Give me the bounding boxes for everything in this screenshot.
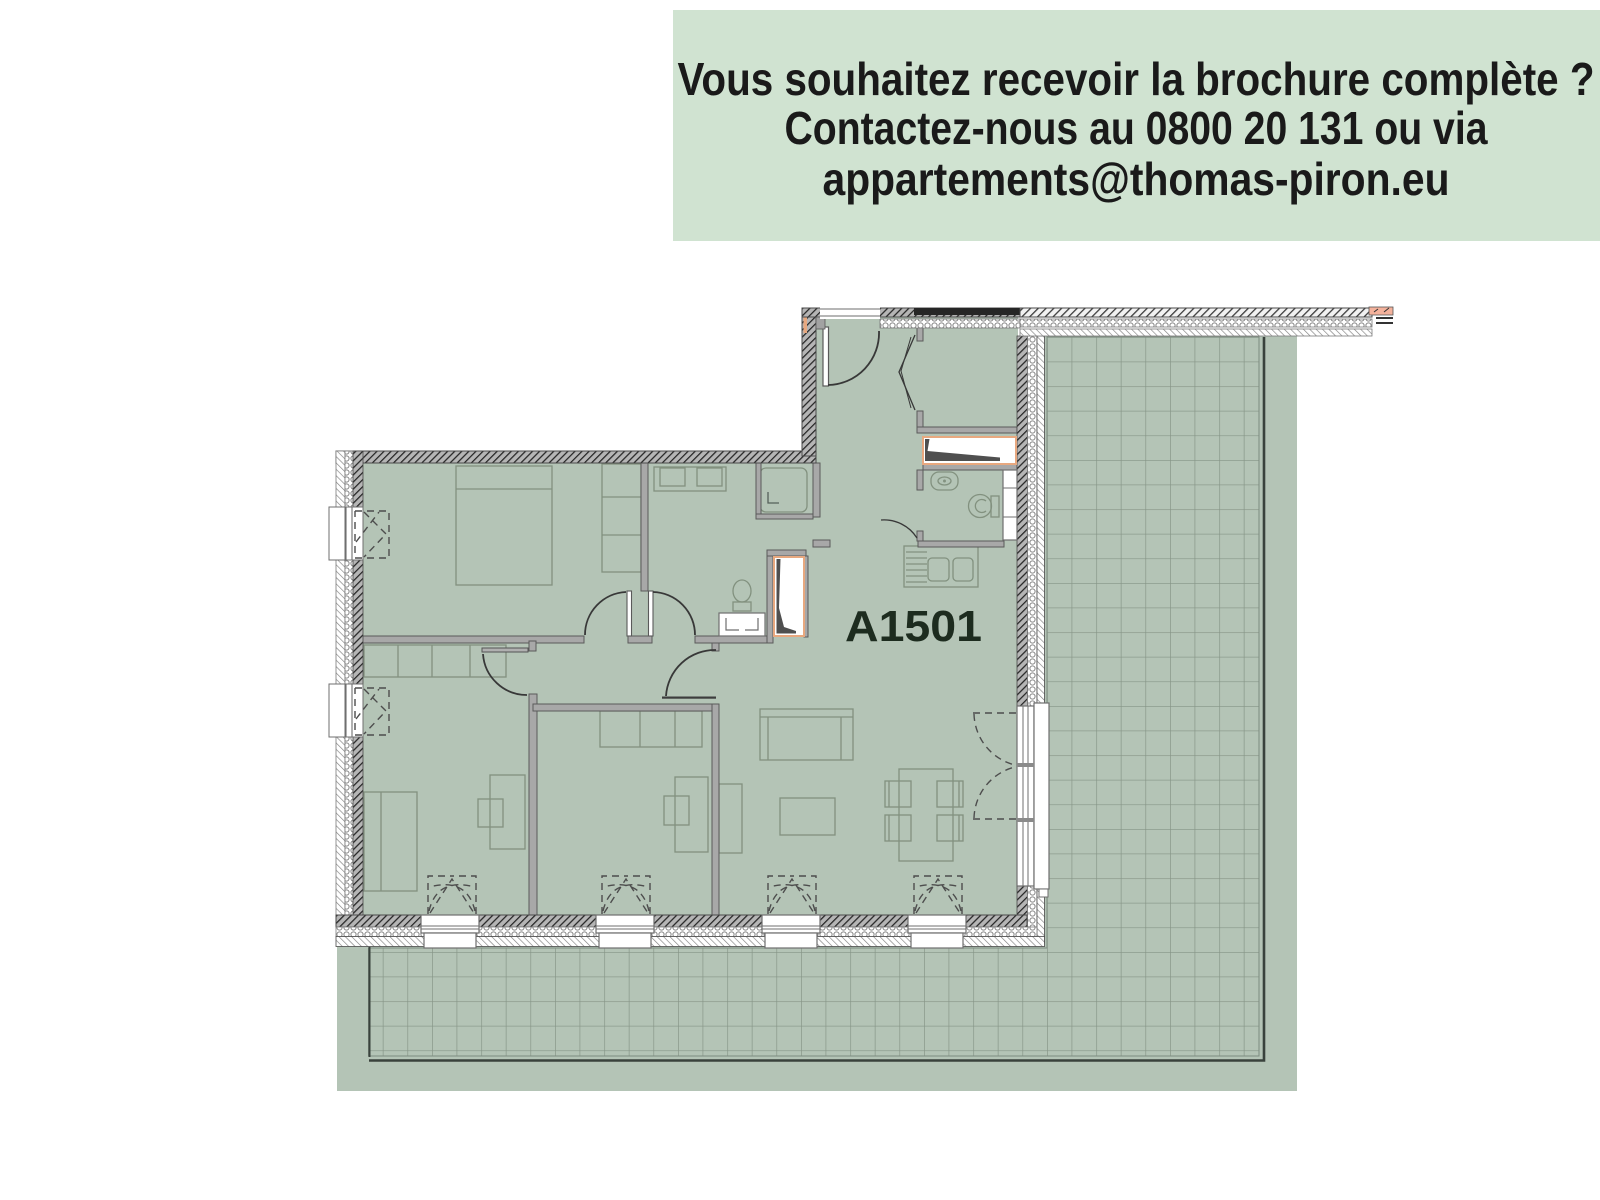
svg-text:appartements@thomas-piron.eu: appartements@thomas-piron.eu — [823, 153, 1450, 205]
svg-text:A1501: A1501 — [845, 602, 982, 651]
svg-text:Vous souhaitez recevoir la bro: Vous souhaitez recevoir la brochure comp… — [678, 53, 1595, 105]
svg-text:Contactez-nous au 0800 20 131: Contactez-nous au 0800 20 131 ou via — [785, 102, 1488, 154]
